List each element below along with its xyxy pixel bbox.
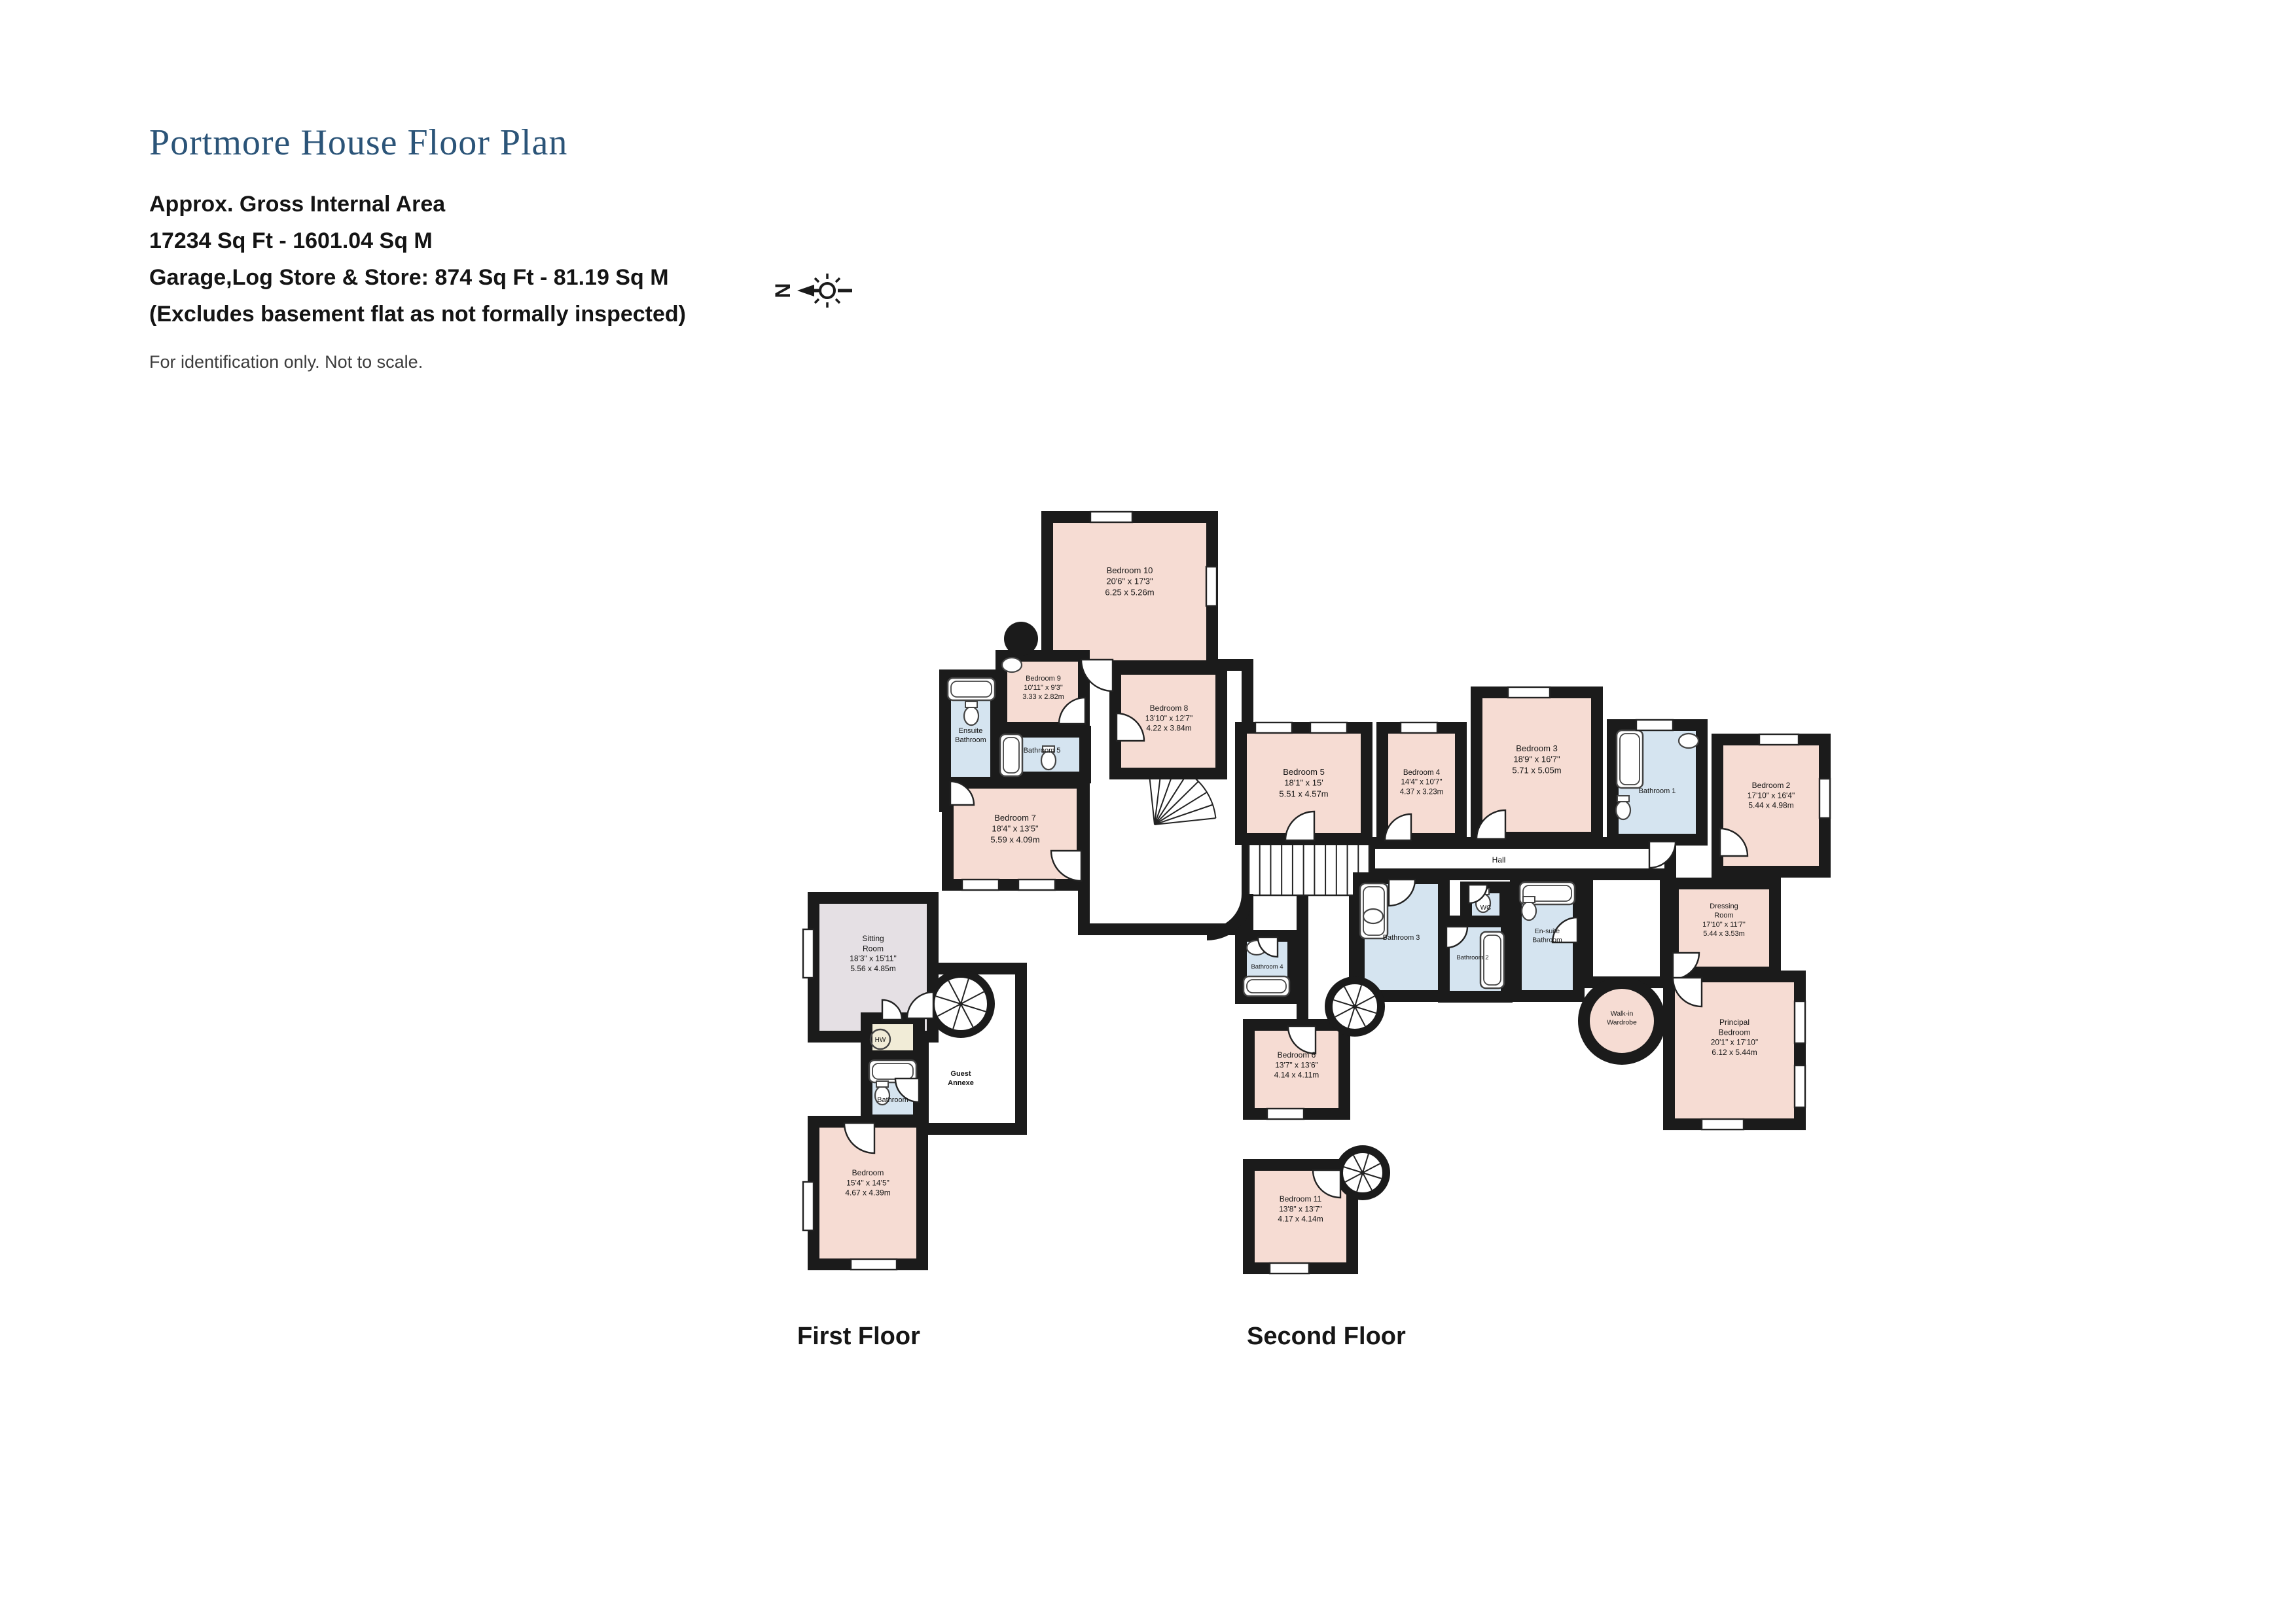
main-staircase: [1249, 844, 1369, 895]
annexe-bedroom-label: Bedroom15'4" x 14'5"4.67 x 4.39m: [845, 1168, 890, 1198]
spiral-stair-annexe-post: [959, 1002, 963, 1007]
window: [1636, 720, 1673, 730]
toilet-cistern-icon: [1617, 796, 1629, 802]
window: [1267, 1109, 1304, 1119]
bathroom-5-label: Bathroom 5: [1024, 747, 1061, 755]
window: [1795, 1001, 1805, 1043]
bedroom-8-label: Bedroom 813'10" x 12'7"4.22 x 3.84m: [1145, 704, 1193, 733]
bathroom-3-label: Bathroom 3: [1383, 934, 1420, 942]
toilet-icon: [1616, 801, 1630, 819]
wc-label: WC: [1480, 904, 1492, 912]
bathtub-icon: [1617, 730, 1643, 788]
second-floor-corridor-east: [1587, 874, 1666, 982]
toilet-icon: [1522, 902, 1536, 920]
window: [1310, 722, 1347, 733]
window: [803, 929, 814, 978]
hall-label: Hall: [1492, 855, 1506, 865]
toilet-icon: [964, 707, 978, 725]
toilet-cistern-icon: [965, 702, 977, 707]
bedroom-4-label: Bedroom 414'4" x 10'7"4.37 x 3.23m: [1400, 769, 1443, 796]
bathroom-4-label: Bathroom 4: [1251, 963, 1283, 971]
window: [1090, 512, 1132, 522]
sink-icon: [1363, 909, 1383, 923]
bedroom-6-label: Bedroom 613'7" x 13'6"4.14 x 4.11m: [1274, 1050, 1319, 1080]
window: [851, 1259, 897, 1270]
spiral-stair-second-floor-post: [1353, 1005, 1357, 1009]
ensuite-bathroom-second-floor-label: En-suiteBathroom: [1532, 927, 1562, 944]
window: [1795, 1065, 1805, 1107]
first-floor-label: First Floor: [797, 1323, 920, 1350]
window: [1206, 567, 1217, 606]
window: [1759, 734, 1799, 745]
toilet-cistern-icon: [1523, 897, 1535, 902]
window: [803, 1182, 814, 1230]
annexe-bathroom-label: Bathroom: [877, 1096, 908, 1104]
bedroom-2-label: Bedroom 217'10" x 16'4"5.44 x 4.98m: [1748, 781, 1795, 810]
floorplan-page: Portmore House Floor Plan Approx. Gross …: [0, 0, 2296, 1623]
walk-in-wardrobe-label: Walk-inWardrobe: [1607, 1010, 1637, 1026]
sink-icon: [1679, 734, 1698, 748]
bathroom-2-label: Bathroom 2: [1456, 954, 1488, 961]
bedroom-11-label: Bedroom 1113'8" x 13'7"4.17 x 4.14m: [1278, 1194, 1323, 1224]
second-floor-label: Second Floor: [1247, 1323, 1406, 1350]
bedroom-5-label: Bedroom 518'1" x 15'5.51 x 4.57m: [1279, 767, 1328, 798]
bedroom-10-label: Bedroom 1020'6" x 17'3"6.25 x 5.26m: [1105, 565, 1154, 597]
turret-bump: [1004, 622, 1038, 656]
bedroom-9-label: Bedroom 910'11" x 9'3"3.33 x 2.82m: [1022, 675, 1064, 701]
bedroom-3-label: Bedroom 318'9" x 16'7"5.71 x 5.05m: [1512, 743, 1561, 775]
sink-icon: [1002, 658, 1022, 672]
window: [1255, 722, 1292, 733]
window: [1018, 880, 1055, 890]
floor-plan-drawing: Bedroom 1020'6" x 17'3"6.25 x 5.26mBedro…: [0, 0, 2296, 1623]
spiral-stair-bedroom-11-post: [1361, 1171, 1365, 1175]
window: [1270, 1263, 1309, 1274]
bathroom-1-label: Bathroom 1: [1639, 787, 1676, 795]
bedroom-7-label: Bedroom 718'4" x 13'5"5.59 x 4.09m: [990, 813, 1039, 844]
window: [1508, 687, 1550, 698]
toilet-cistern-icon: [876, 1081, 888, 1087]
window: [962, 880, 999, 890]
window: [1702, 1119, 1744, 1130]
hot-water-tank-label: HW: [875, 1037, 886, 1044]
window: [1401, 722, 1437, 733]
window: [1820, 779, 1830, 818]
